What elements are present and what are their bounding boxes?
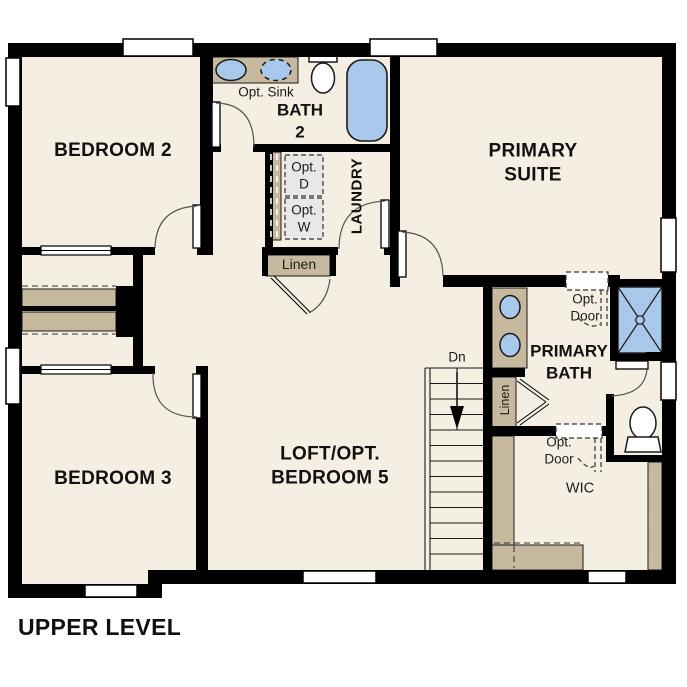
primary-toilet-tank bbox=[625, 437, 661, 452]
floor-plan-drawing bbox=[0, 0, 687, 687]
window bbox=[661, 218, 676, 272]
primary-linen-shelf bbox=[492, 377, 516, 427]
window bbox=[6, 348, 20, 404]
floor-plan: BEDROOM 2 BATH 2 PRIMARY SUITE LAUNDRY B… bbox=[0, 0, 687, 687]
closet-shelf-bedroom2 bbox=[22, 289, 116, 308]
bedroom3-door bbox=[193, 374, 201, 418]
window bbox=[588, 571, 626, 583]
primary-sink-2 bbox=[500, 334, 520, 357]
optional-dryer-box bbox=[285, 155, 323, 196]
window bbox=[370, 39, 437, 56]
window bbox=[661, 362, 676, 400]
window bbox=[6, 58, 20, 106]
closet-shelf-bedroom3 bbox=[22, 312, 116, 331]
primary-sink-1 bbox=[500, 296, 520, 319]
shower-drain bbox=[636, 316, 644, 324]
bath2-sink bbox=[216, 60, 246, 81]
window bbox=[85, 585, 137, 597]
bedroom2-door bbox=[193, 205, 201, 248]
optional-door-suite-opening bbox=[566, 272, 608, 290]
shower bbox=[610, 279, 668, 361]
wic-shelf-bottom bbox=[492, 545, 583, 570]
optional-washer-box bbox=[285, 198, 323, 239]
wic-shelf-right bbox=[648, 462, 662, 570]
laundry-door bbox=[381, 200, 389, 248]
window bbox=[303, 571, 376, 583]
bathtub bbox=[347, 60, 387, 141]
plan-title: UPPER LEVEL bbox=[18, 614, 181, 641]
bath2-optional-sink bbox=[261, 60, 291, 81]
bath2-door bbox=[212, 102, 220, 147]
primary-toilet-bowl bbox=[630, 407, 656, 439]
window bbox=[123, 39, 193, 56]
bath2-toilet-bowl bbox=[312, 63, 335, 93]
toilet-room-door bbox=[616, 361, 648, 369]
optional-door-wic-opening bbox=[556, 424, 602, 438]
primary-suite-door bbox=[398, 231, 406, 277]
hall-linen-shelf bbox=[266, 255, 330, 276]
